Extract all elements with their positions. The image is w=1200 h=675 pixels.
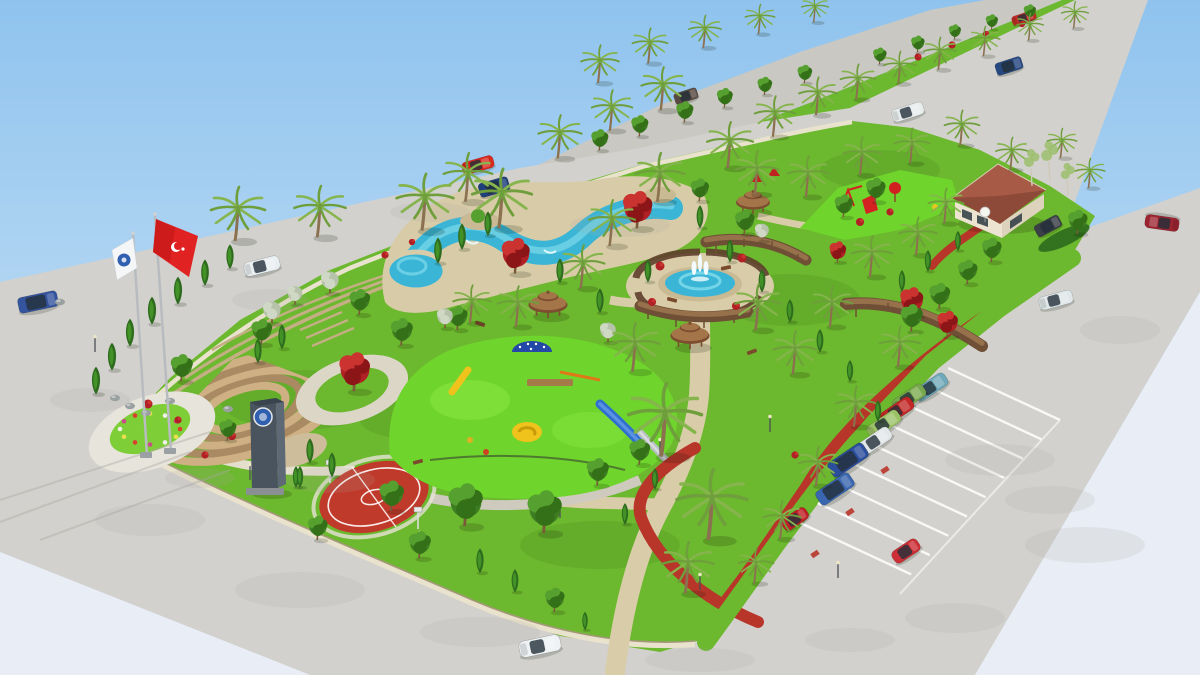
red-flower-bush-highlight	[890, 209, 893, 212]
pavement-blotch	[905, 603, 1005, 633]
rock-highlight	[56, 300, 60, 303]
lamp-head	[93, 335, 97, 339]
flower	[163, 440, 168, 445]
red-flower-bush-highlight	[385, 252, 388, 255]
rock	[223, 406, 233, 412]
lamp-head	[768, 415, 772, 419]
red-flower-bush	[648, 298, 656, 306]
red-flower-bush-highlight	[860, 219, 864, 223]
flower	[174, 434, 179, 439]
pavement-blotch	[1080, 316, 1160, 344]
lamp-head	[248, 463, 252, 467]
lamp-head	[836, 561, 840, 565]
flower	[163, 413, 168, 418]
red-flower-bush-highlight	[652, 299, 656, 303]
red-flower-bush-highlight	[178, 417, 181, 420]
red-flower-bush-highlight	[986, 31, 989, 34]
flower	[133, 440, 138, 445]
pavement-blotch	[805, 628, 895, 652]
play-bridge	[527, 379, 573, 386]
rock-highlight	[111, 396, 115, 399]
rock	[125, 403, 135, 409]
red-flower-bush-highlight	[205, 452, 208, 455]
red-flower-bush	[856, 218, 864, 226]
park-render-image: Aerial 3D architectural rendering of a l…	[0, 0, 1200, 675]
flower	[122, 434, 127, 439]
rock	[55, 299, 65, 305]
spiral-slide	[512, 422, 542, 442]
rock	[141, 410, 151, 416]
red-flower-bush-highlight	[742, 255, 746, 259]
pavement-blotch	[95, 504, 205, 536]
red-flower-bush-highlight	[148, 401, 152, 405]
flower	[122, 419, 127, 424]
pavement-blotch	[235, 572, 365, 608]
rock	[110, 395, 120, 401]
pavement-blotch	[945, 444, 1055, 476]
pavement-blotch	[1005, 486, 1095, 514]
rock-highlight	[126, 404, 130, 407]
rock-highlight	[224, 407, 228, 410]
pavement-blotch	[1025, 527, 1145, 563]
flower	[148, 442, 153, 447]
pavement-blotch	[645, 648, 755, 672]
flower	[133, 413, 138, 418]
red-flower-bush	[738, 254, 747, 263]
red-flower-bush-highlight	[660, 263, 664, 267]
red-flower-bush-highlight	[795, 452, 798, 455]
flower	[118, 427, 123, 432]
red-flower-bush-highlight	[412, 239, 415, 242]
flower	[178, 427, 183, 432]
render-canvas: Aerial 3D architectural rendering of a l…	[0, 0, 1200, 675]
red-flower-bush	[656, 262, 665, 271]
lamp-head	[698, 573, 702, 577]
